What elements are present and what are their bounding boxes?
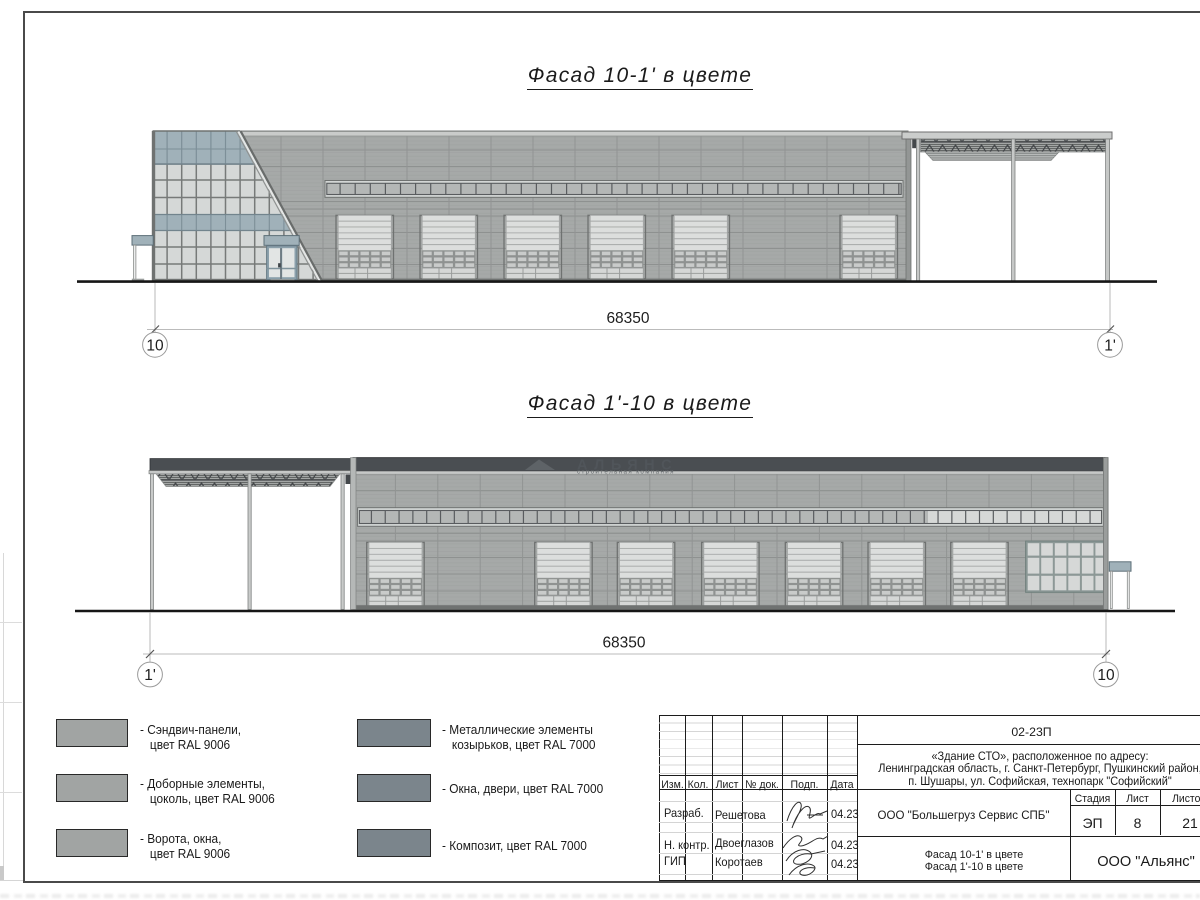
- svg-text:10: 10: [146, 338, 164, 355]
- svg-text:1': 1': [144, 667, 156, 684]
- svg-text:10: 10: [1097, 667, 1115, 684]
- svg-text:строительная компания: строительная компания: [577, 468, 675, 475]
- svg-text:68350: 68350: [602, 635, 645, 652]
- svg-text:68350: 68350: [606, 310, 649, 327]
- svg-text:1': 1': [1104, 338, 1116, 355]
